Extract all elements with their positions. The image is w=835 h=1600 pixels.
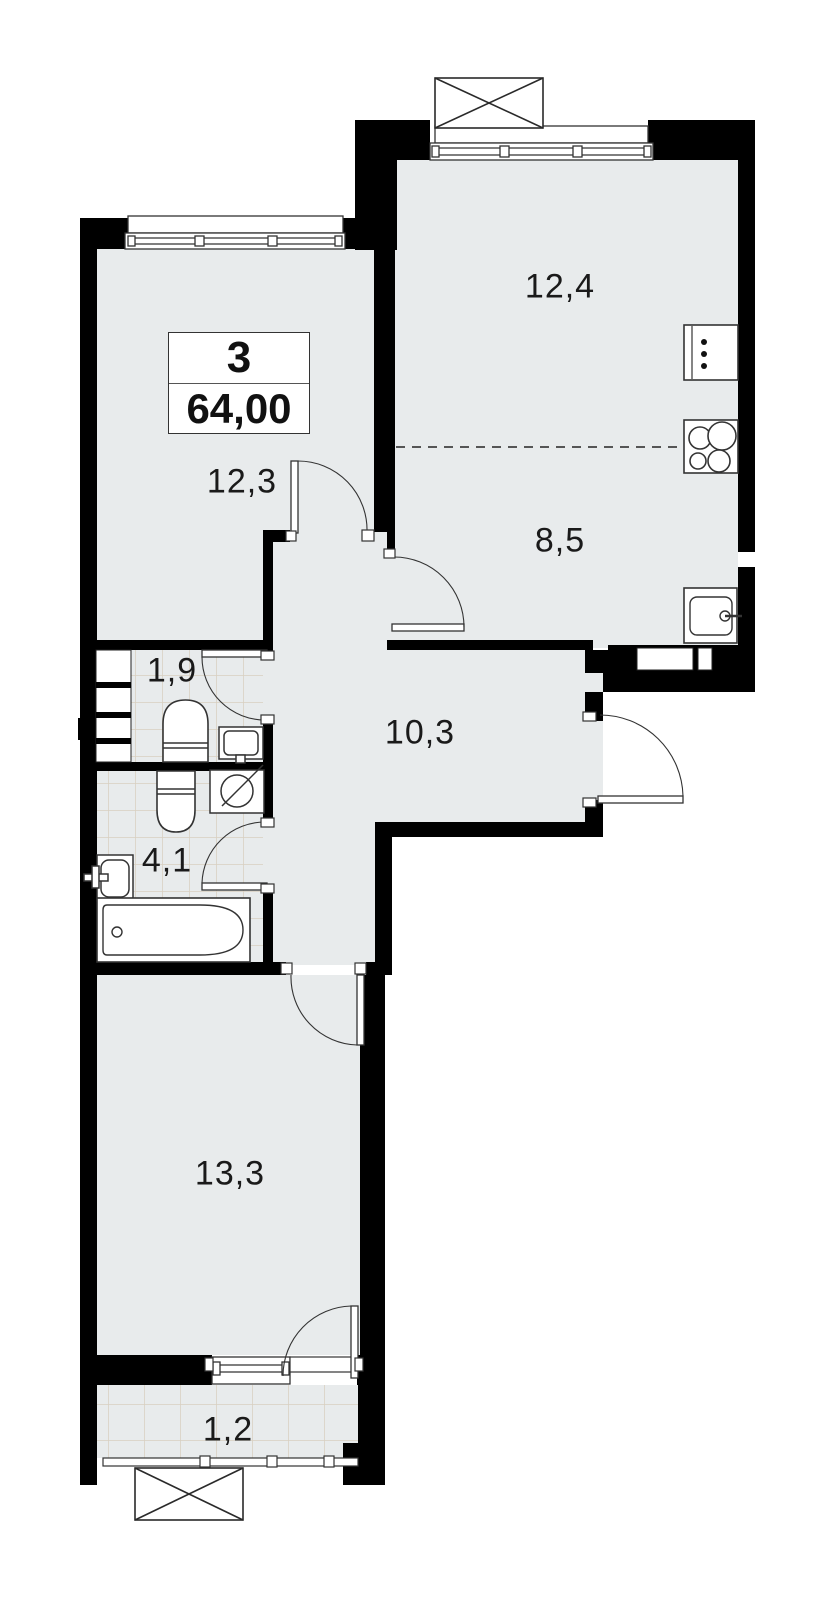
door-leaf-bathroom (202, 883, 267, 890)
door-leaf-entrance (598, 796, 683, 803)
bathtub-icon (97, 898, 250, 962)
room-label-bathroom: 4,1 (142, 842, 192, 881)
door-leaf-bedroom-2 (357, 975, 364, 1045)
toilet-icon-bathroom (157, 771, 195, 832)
room-label-kitchen-zone: 8,5 (535, 522, 585, 561)
vent-shaft (96, 650, 131, 762)
floor-plan-drawing (0, 0, 835, 1600)
door-leaf-wc (202, 650, 267, 657)
washing-machine-icon (210, 765, 264, 813)
plan-title-box: 3 64,00 (168, 332, 310, 434)
stove-icon (684, 420, 738, 473)
room-label-hallway: 10,3 (385, 714, 455, 753)
kitchen-sink-icon (684, 588, 742, 643)
door-leaf-bedroom-1 (291, 461, 298, 533)
door-leaf-kitchen (392, 624, 464, 631)
washbasin-icon-wc (219, 727, 263, 763)
balcony-rail (103, 1456, 358, 1467)
room-label-bedroom-2: 13,3 (195, 1155, 265, 1194)
fridge-icon (684, 325, 738, 380)
total-area: 64,00 (169, 384, 309, 433)
room-label-balcony: 1,2 (203, 1411, 253, 1450)
kitchen-vent-shafts (637, 648, 712, 670)
wall-joint-notch (738, 552, 755, 567)
window-bedroom-1 (125, 216, 345, 249)
balcony-hatch-top (435, 78, 543, 128)
floor-plan: 3 64,00 12,4 8,5 12,3 1,9 4,1 10,3 13,3 … (0, 0, 835, 1600)
window-kitchen (430, 126, 653, 160)
toilet-icon-wc (163, 700, 208, 762)
balcony-door-threshold (290, 1357, 357, 1372)
room-label-living-kitchen: 12,4 (525, 268, 595, 307)
door-swing-entrance (600, 715, 683, 796)
room-label-wc: 1,9 (147, 652, 197, 691)
window-bedroom-2 (212, 1357, 290, 1384)
rooms-count: 3 (169, 333, 309, 384)
room-label-bedroom-1: 12,3 (207, 463, 277, 502)
balcony-hatch-bottom (135, 1468, 243, 1520)
